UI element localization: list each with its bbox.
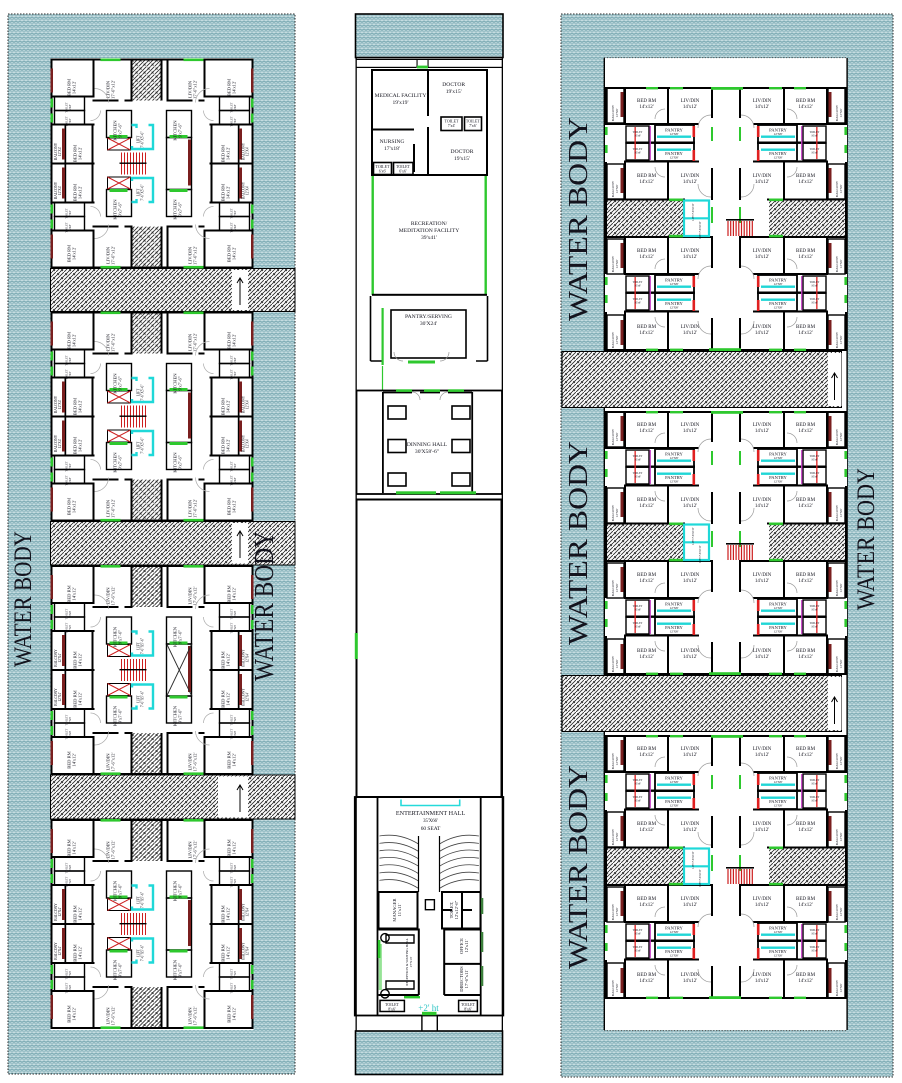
svg-text:+2' ht: +2' ht <box>418 1003 439 1013</box>
svg-text:8'x6': 8'x6' <box>464 1007 472 1012</box>
svg-text:39'x41': 39'x41' <box>421 235 437 241</box>
svg-text:19'x19': 19'x19' <box>392 100 408 106</box>
svg-text:RECREATION/: RECREATION/ <box>411 221 448 227</box>
svg-text:7'x6': 7'x6' <box>469 123 477 128</box>
svg-text:7'x4': 7'x4' <box>448 123 456 128</box>
svg-text:DIRECTORS17'-6"x11': DIRECTORS17'-6"x11' <box>459 966 469 992</box>
svg-text:WATER BODY: WATER BODY <box>853 468 880 610</box>
svg-text:WATER BODY: WATER BODY <box>249 531 279 681</box>
svg-text:PANTRY/SERVING: PANTRY/SERVING <box>405 314 452 320</box>
svg-text:17'x18': 17'x18' <box>384 146 400 152</box>
svg-text:WATER BODY: WATER BODY <box>10 531 37 667</box>
svg-text:30'X58'-6": 30'X58'-6" <box>415 449 439 455</box>
svg-text:ENTERTAINMENT HALL: ENTERTAINMENT HALL <box>396 810 466 817</box>
svg-text:6'x6': 6'x6' <box>399 169 407 174</box>
svg-text:DOCTOR: DOCTOR <box>451 149 474 155</box>
svg-text:NURSING: NURSING <box>380 139 405 145</box>
svg-text:MEDITATION FACILITY: MEDITATION FACILITY <box>399 228 460 234</box>
svg-text:WATER BODY: WATER BODY <box>563 441 593 645</box>
svg-text:6'x6': 6'x6' <box>379 169 387 174</box>
svg-text:WATER BODY: WATER BODY <box>563 117 593 321</box>
svg-text:MEDICAL FACILITY: MEDICAL FACILITY <box>375 93 427 99</box>
svg-text:35'X66': 35'X66' <box>423 819 438 824</box>
svg-text:30'X24': 30'X24' <box>420 321 437 327</box>
svg-text:TOILET,12'x12'-6": TOILET,12'x12'-6" <box>449 900 459 919</box>
svg-text:DOCTOR: DOCTOR <box>442 82 465 88</box>
svg-text:19'x15': 19'x15' <box>446 89 462 95</box>
svg-text:19'x15': 19'x15' <box>454 156 470 162</box>
svg-text:OFFICE12'x11': OFFICE12'x11' <box>459 938 469 954</box>
svg-text:WATER BODY: WATER BODY <box>563 765 593 969</box>
svg-text:DINNING HALL: DINNING HALL <box>407 442 448 448</box>
svg-text:60 SEAT: 60 SEAT <box>421 826 441 832</box>
svg-text:8'x6': 8'x6' <box>388 1007 396 1012</box>
